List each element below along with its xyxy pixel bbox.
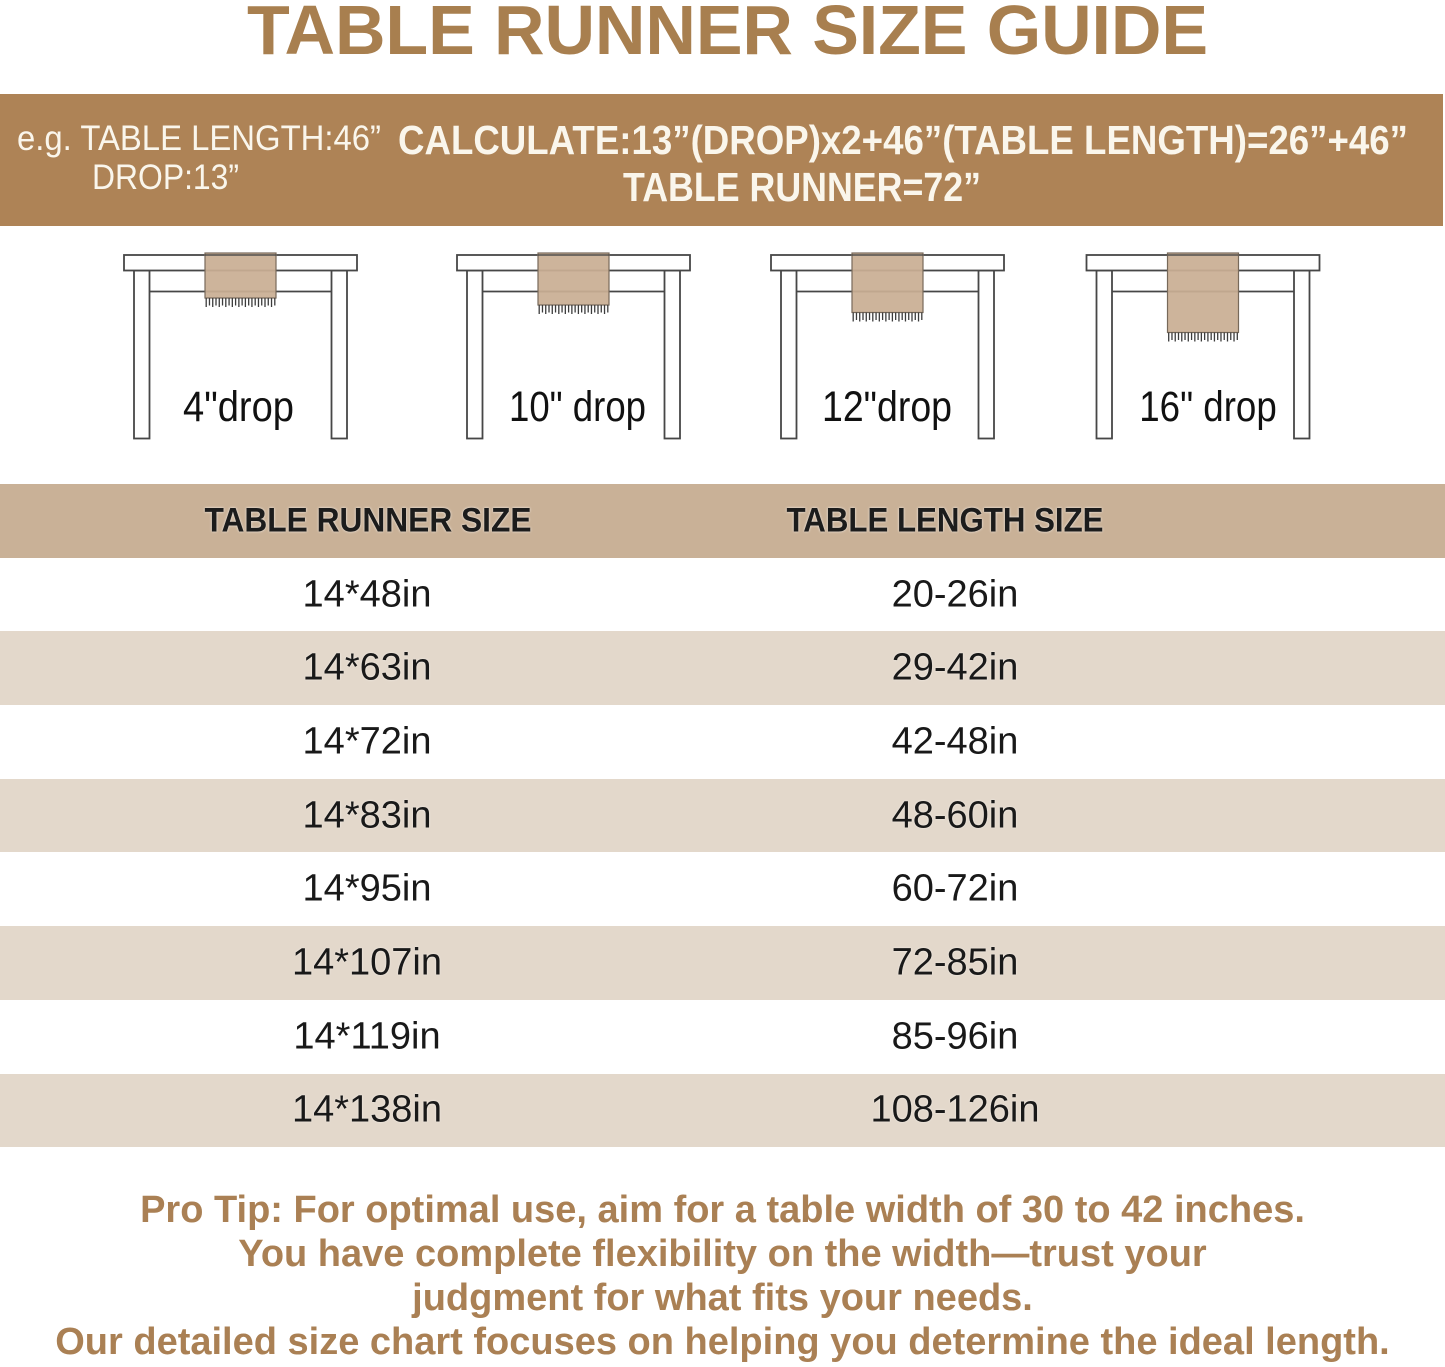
svg-text:10" drop: 10" drop [509,383,646,431]
svg-text:4"drop: 4"drop [183,383,294,431]
svg-text:16" drop: 16" drop [1139,383,1277,431]
svg-text:12"drop: 12"drop [822,383,952,431]
